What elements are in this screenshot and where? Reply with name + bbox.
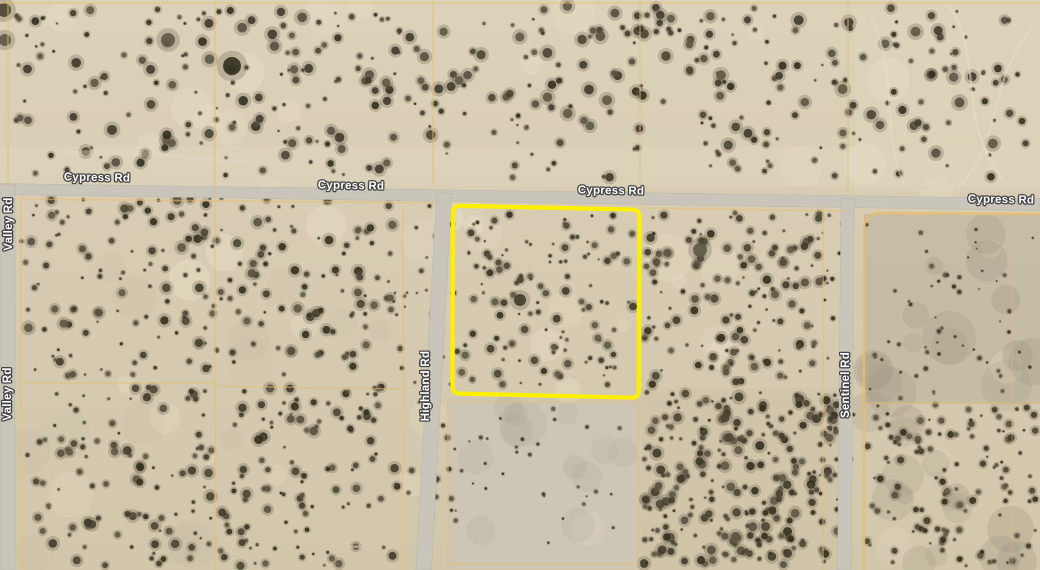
road-label-valley-1: Valley Rd <box>3 197 15 250</box>
road-label-cypress-4: Cypress Rd <box>968 193 1035 206</box>
satellite-map[interactable]: Cypress Rd Cypress Rd Cypress Rd Cypress… <box>0 0 1040 570</box>
road-label-cypress-2: Cypress Rd <box>318 179 385 192</box>
road-label-cypress-1: Cypress Rd <box>64 171 131 184</box>
road-label-sentinel: Sentinel Rd <box>840 352 852 418</box>
road-label-valley-2: Valley Rd <box>2 367 14 420</box>
road-label-cypress-3: Cypress Rd <box>578 184 645 197</box>
map-imagery <box>0 0 1040 570</box>
road-label-highland: Highland Rd <box>420 351 432 421</box>
